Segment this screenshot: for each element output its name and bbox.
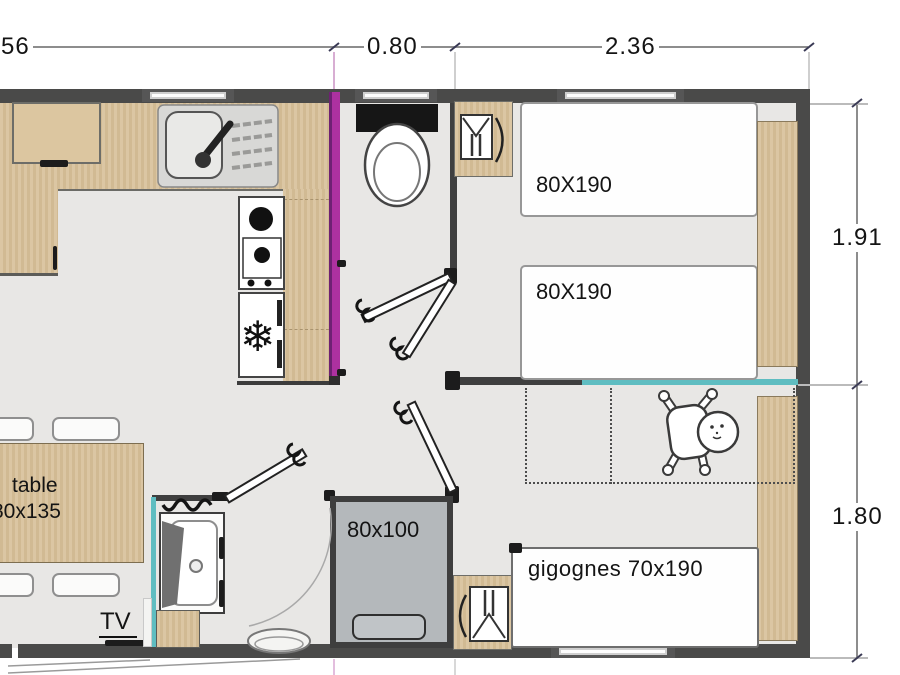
- label-shower: 80x100: [347, 518, 419, 541]
- counter-column-base: [237, 381, 330, 385]
- washbasin-edge-mark-2: [219, 580, 224, 607]
- washbasin-edge-mark-1: [219, 537, 224, 559]
- tv-unit: [105, 640, 147, 646]
- dim-left-partial: 56: [0, 33, 33, 61]
- chair-back-1: [0, 417, 34, 441]
- dim-bedroom-width: 2.36: [602, 33, 659, 61]
- label-bed2: 80X190: [536, 280, 612, 303]
- hinge-hall-wall: [445, 371, 460, 390]
- chair-back-2: [52, 417, 120, 441]
- tv-cabinet-edge: [143, 598, 152, 647]
- wall-bottom-left-stub: [0, 644, 12, 658]
- bed-single-1: [520, 102, 758, 217]
- kitchen-overhead-cabinet: [12, 102, 101, 164]
- ext-line-right-2: [798, 384, 868, 386]
- baby-area-dotted-bottom: [525, 482, 795, 484]
- counter-edge-mark: [53, 246, 57, 270]
- bathroom-door-pivot: [212, 492, 229, 501]
- floor-plan: ❄: [0, 0, 900, 675]
- wall-right: [796, 89, 810, 658]
- label-bed-gigognes: gigognes 70x190: [528, 557, 703, 580]
- counter-joint-dash-1: [284, 199, 329, 200]
- window-icon-bedroom1: [557, 89, 684, 102]
- ext-line-corner-top: [808, 52, 810, 89]
- ext-line-wc-top: [454, 52, 456, 89]
- window-icon-wc: [355, 89, 437, 102]
- ext-line-wc-bottom: [454, 659, 456, 675]
- wardrobe-entry: [453, 575, 512, 650]
- washbasin-inner: [170, 520, 218, 606]
- ext-line-right-3: [810, 657, 868, 659]
- dim-wc-width: 0.80: [364, 33, 421, 61]
- shower-tray: [352, 614, 426, 640]
- label-table-line1: table: [12, 475, 58, 497]
- counter-joint-dash-2: [284, 329, 329, 330]
- bed-gigognes-corner-bracket: [509, 543, 522, 553]
- magenta-partition-wall: [329, 92, 340, 385]
- bathroom-cabinet: [156, 610, 200, 648]
- hinge-wc-wall: [444, 268, 457, 284]
- kitchen-counter-left: [0, 189, 58, 276]
- baby-area-dotted-left: [525, 388, 527, 484]
- ext-line-magenta-top: [333, 52, 335, 89]
- entrance-steps-lines: [8, 659, 300, 673]
- tv-underline: [99, 636, 137, 638]
- ext-line-right-1: [810, 103, 868, 105]
- dim-line-right: [856, 103, 858, 658]
- fridge-icon: [238, 292, 285, 378]
- baby-area-dotted-right: [793, 388, 795, 484]
- wardrobe-wc: [454, 101, 513, 177]
- wardrobe-bedroom1: [757, 121, 798, 367]
- label-tv: TV: [100, 609, 131, 634]
- ext-line-magenta-bottom: [333, 659, 335, 675]
- dim-bedroom2-depth: 1.80: [829, 503, 886, 531]
- chair-back-4: [52, 573, 120, 597]
- window-icon-kitchen: [142, 89, 234, 102]
- cabinet-handle: [40, 160, 68, 167]
- wardrobe-bedroom2: [757, 396, 798, 641]
- label-bed1: 80X190: [536, 173, 612, 196]
- magenta-wall-end-cap: [329, 376, 340, 385]
- strike-plate-magenta-2: [337, 369, 346, 376]
- baby-area-dotted-mid: [610, 388, 612, 484]
- chair-back-3: [0, 573, 34, 597]
- dim-bedroom1-depth: 1.91: [829, 224, 886, 252]
- strike-plate-magenta-1: [337, 260, 346, 267]
- label-table-line2: 80x135: [0, 501, 61, 523]
- stove-icon: [238, 196, 285, 290]
- kitchen-counter-column: [283, 189, 330, 383]
